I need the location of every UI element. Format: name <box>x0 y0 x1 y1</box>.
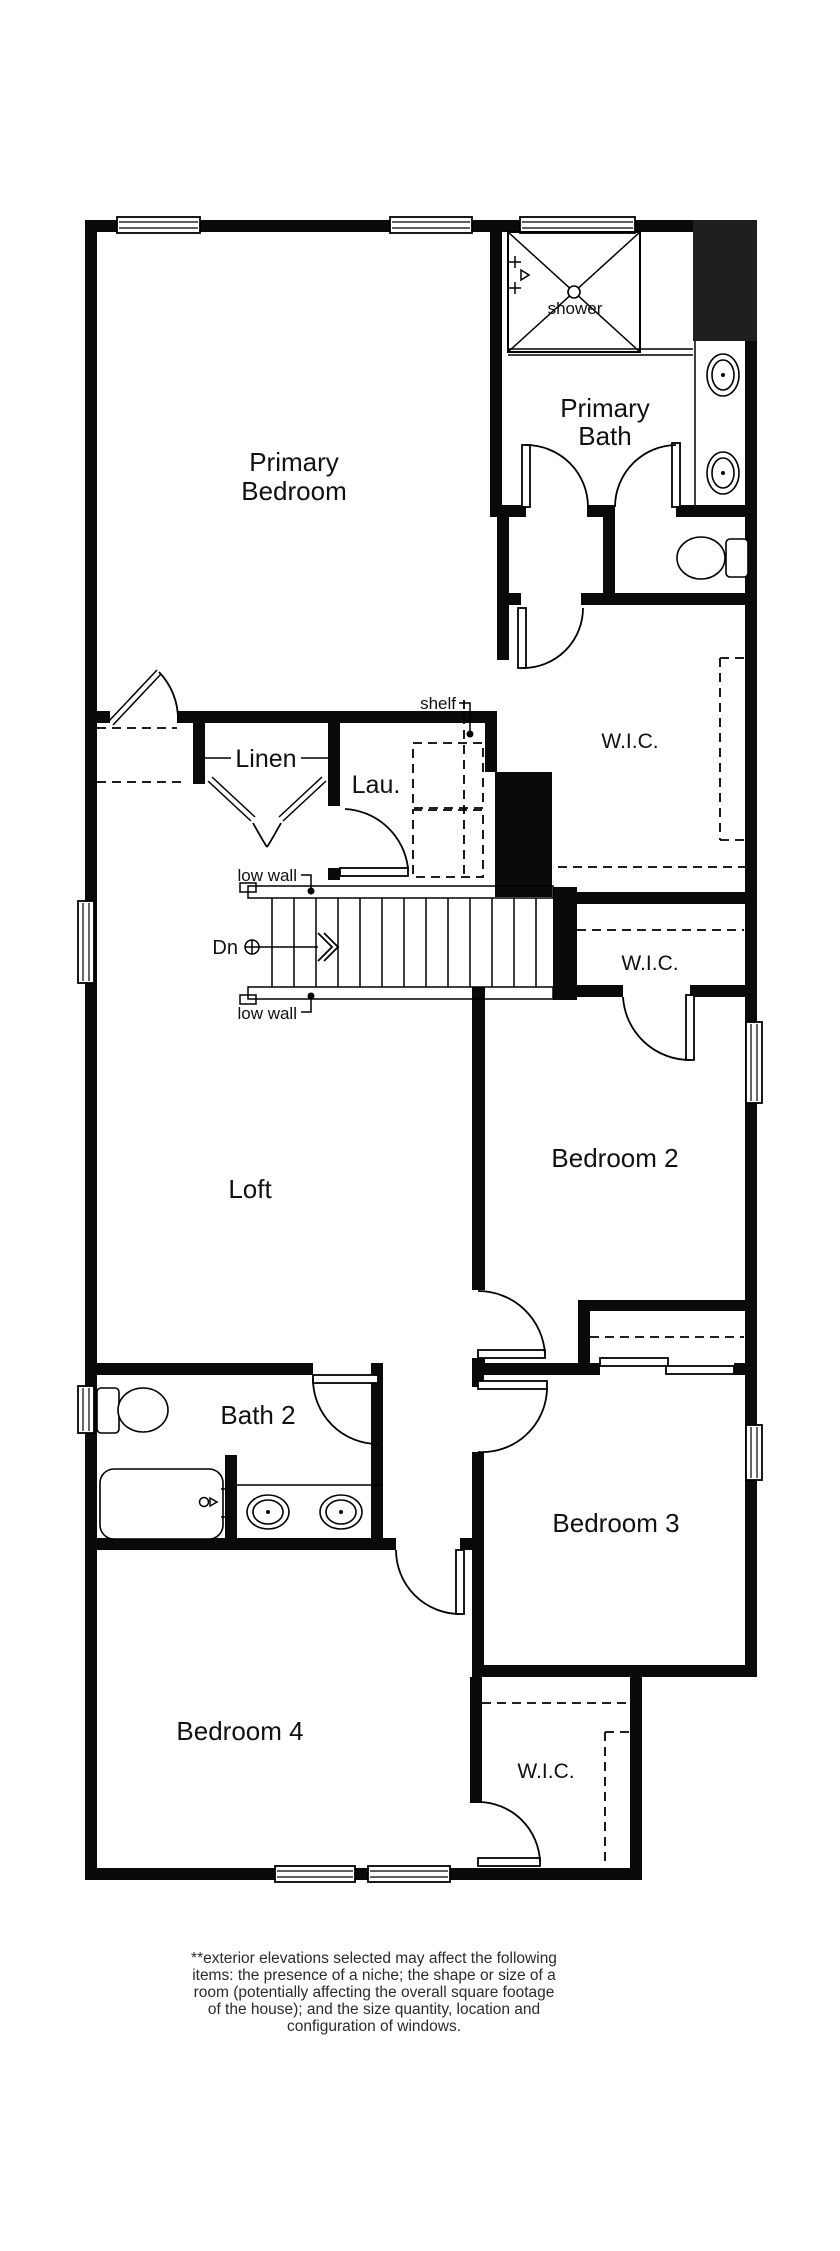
interior-walls <box>85 232 757 1803</box>
bath2-label: Bath 2 <box>220 1400 295 1430</box>
door-bath2 <box>313 1375 378 1444</box>
disclaimer-text: **exterior elevations selected may affec… <box>191 1950 557 2035</box>
svg-text:of the house); and the size qu: of the house); and the size quantity, lo… <box>208 2001 540 2018</box>
sink-icon <box>707 452 739 494</box>
stairs <box>240 883 553 1004</box>
door-laundry <box>340 809 408 876</box>
window-bedroom4-right <box>368 1866 450 1882</box>
low-wall-bottom-label: low wall <box>237 1004 297 1023</box>
window-bedroom3-right <box>746 1425 762 1480</box>
door-bedroom3 <box>478 1381 547 1452</box>
svg-text:room (potentially affecting th: room (potentially affecting the overall … <box>194 1984 555 2001</box>
floor-plan-page: PrimaryBedroom PrimaryBath shower W.I.C.… <box>0 0 840 2251</box>
door-wic-bedroom2 <box>623 995 694 1060</box>
shower-label: shower <box>548 299 603 318</box>
wic-bedroom4-label: W.I.C. <box>517 1760 574 1783</box>
linen-label: Linen <box>235 745 296 773</box>
low-wall-bottom-leader <box>301 998 311 1012</box>
door-wic-primary <box>518 608 583 668</box>
shower-valve-icon <box>509 256 529 294</box>
bath2-tub <box>100 1469 231 1539</box>
window-bedroom4-left <box>275 1866 355 1882</box>
window-primary-bedroom-left <box>117 217 200 233</box>
bath2-toilet-icon <box>97 1388 168 1433</box>
primary-vanity <box>695 341 739 505</box>
laundry-label: Lau. <box>352 771 401 799</box>
low-wall-top-leader <box>301 875 311 889</box>
primary-toilet-icon <box>677 537 748 579</box>
window-loft-left <box>78 901 94 983</box>
shelf-label: shelf <box>420 694 456 713</box>
shower-pan <box>508 232 693 355</box>
window-primary-bedroom-right <box>390 217 472 233</box>
loft-label: Loft <box>228 1174 272 1204</box>
door-toilet-room <box>615 443 680 507</box>
bath2-vanity <box>237 1485 383 1529</box>
bedroom2-label: Bedroom 2 <box>551 1143 678 1173</box>
wic-primary-label: W.I.C. <box>601 730 658 753</box>
mechanical-chase-top <box>693 220 757 341</box>
svg-text:configuration of windows.: configuration of windows. <box>287 2018 461 2035</box>
door-primary-bath <box>522 445 588 507</box>
door-bedroom4 <box>396 1550 464 1614</box>
sink-icon <box>707 354 739 396</box>
window-bath2-left <box>78 1386 94 1433</box>
window-bedroom2-right <box>746 1022 762 1103</box>
door-primary-bedroom <box>97 670 187 782</box>
windows <box>78 217 762 1882</box>
stair-treads <box>272 898 536 987</box>
low-wall-bottom <box>248 987 553 999</box>
washer-dryer-symbols <box>413 700 483 877</box>
door-wic-bedroom4 <box>478 1802 540 1866</box>
low-wall-top-label: low wall <box>237 866 297 885</box>
stairs-down-label: Dn <box>212 937 238 959</box>
primary-bath-label: PrimaryBath <box>560 393 650 451</box>
door-bedroom2 <box>478 1291 545 1358</box>
bedroom4-label: Bedroom 4 <box>176 1716 303 1746</box>
wic-bedroom2-label: W.I.C. <box>621 952 678 975</box>
svg-text:items: the presence of a niche: items: the presence of a niche; the shap… <box>192 1967 556 1984</box>
sink-icon <box>320 1495 362 1529</box>
door-linen-double <box>208 777 326 847</box>
floor-plan-drawing: PrimaryBedroom PrimaryBath shower W.I.C.… <box>0 0 840 2251</box>
bedroom3-label: Bedroom 3 <box>552 1508 679 1538</box>
sink-icon <box>247 1495 289 1529</box>
stairs-down-arrow-icon <box>245 933 338 961</box>
door-closet-bypass <box>600 1358 734 1374</box>
window-shower <box>520 217 635 233</box>
mechanical-chase-middle <box>495 772 552 897</box>
svg-text:**exterior elevations selected: **exterior elevations selected may affec… <box>191 1950 557 1967</box>
primary-bedroom-label: PrimaryBedroom <box>241 447 347 506</box>
exterior-walls <box>85 220 757 1880</box>
